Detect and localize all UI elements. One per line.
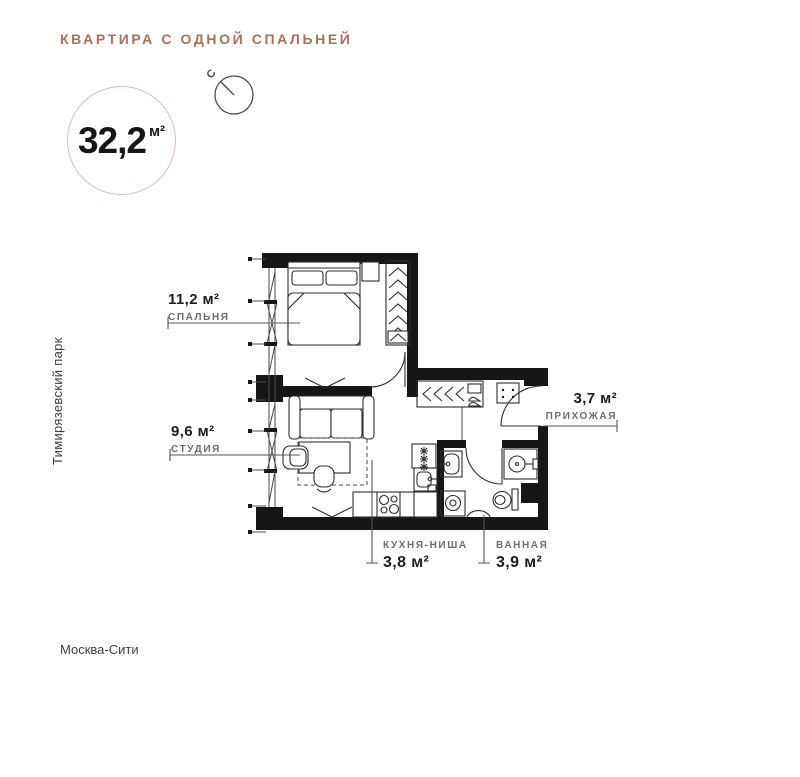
hallway-name-label: ПРИХОЖАЯ: [546, 411, 617, 422]
studio-vent: [312, 507, 352, 517]
washbasin: [441, 451, 462, 477]
floorplan-drawing: С: [0, 0, 800, 777]
stove: [380, 496, 399, 514]
hallway-closet: [417, 381, 483, 407]
studio-name-label: СТУДИЯ: [171, 444, 221, 455]
bed: [288, 262, 360, 345]
bath-drain-arc: [467, 511, 490, 517]
kitchen-area-label: 3,8 м²: [383, 554, 429, 571]
shoe-cabinet-icon: [468, 384, 481, 406]
bedside-shelf: [362, 262, 379, 281]
compass-north-label: С: [204, 67, 218, 80]
entrance-door: [501, 386, 541, 426]
bathroom-door: [466, 448, 502, 484]
kitchen-name-label: КУХНЯ-НИША: [383, 540, 468, 551]
floorplan-page: КВАРТИРА С ОДНОЙ СПАЛЬНЕЙ 32,2 м² Тимиря…: [0, 0, 800, 777]
kitchen-sink: [414, 468, 437, 491]
shower: [504, 449, 538, 479]
fridge: [412, 444, 436, 471]
stool: [314, 466, 334, 492]
bedroom-wardrobe: [386, 261, 410, 345]
compass-icon: С: [204, 67, 253, 114]
bedroom-door: [370, 352, 405, 387]
hallway-area-label: 3,7 м²: [573, 390, 617, 407]
bedroom-area-label: 11,2 м²: [168, 291, 219, 308]
bathroom-area-label: 3,9 м²: [496, 554, 542, 571]
sofa: [289, 396, 374, 439]
toilet: [493, 489, 518, 510]
studio-area-label: 9,6 м²: [171, 423, 215, 440]
bathroom-name-label: ВАННАЯ: [496, 540, 548, 551]
washing-machine: [441, 491, 465, 516]
armchair: [283, 446, 308, 469]
bedroom-name-label: СПАЛЬНЯ: [168, 312, 230, 323]
entry-pouf: [497, 383, 519, 403]
